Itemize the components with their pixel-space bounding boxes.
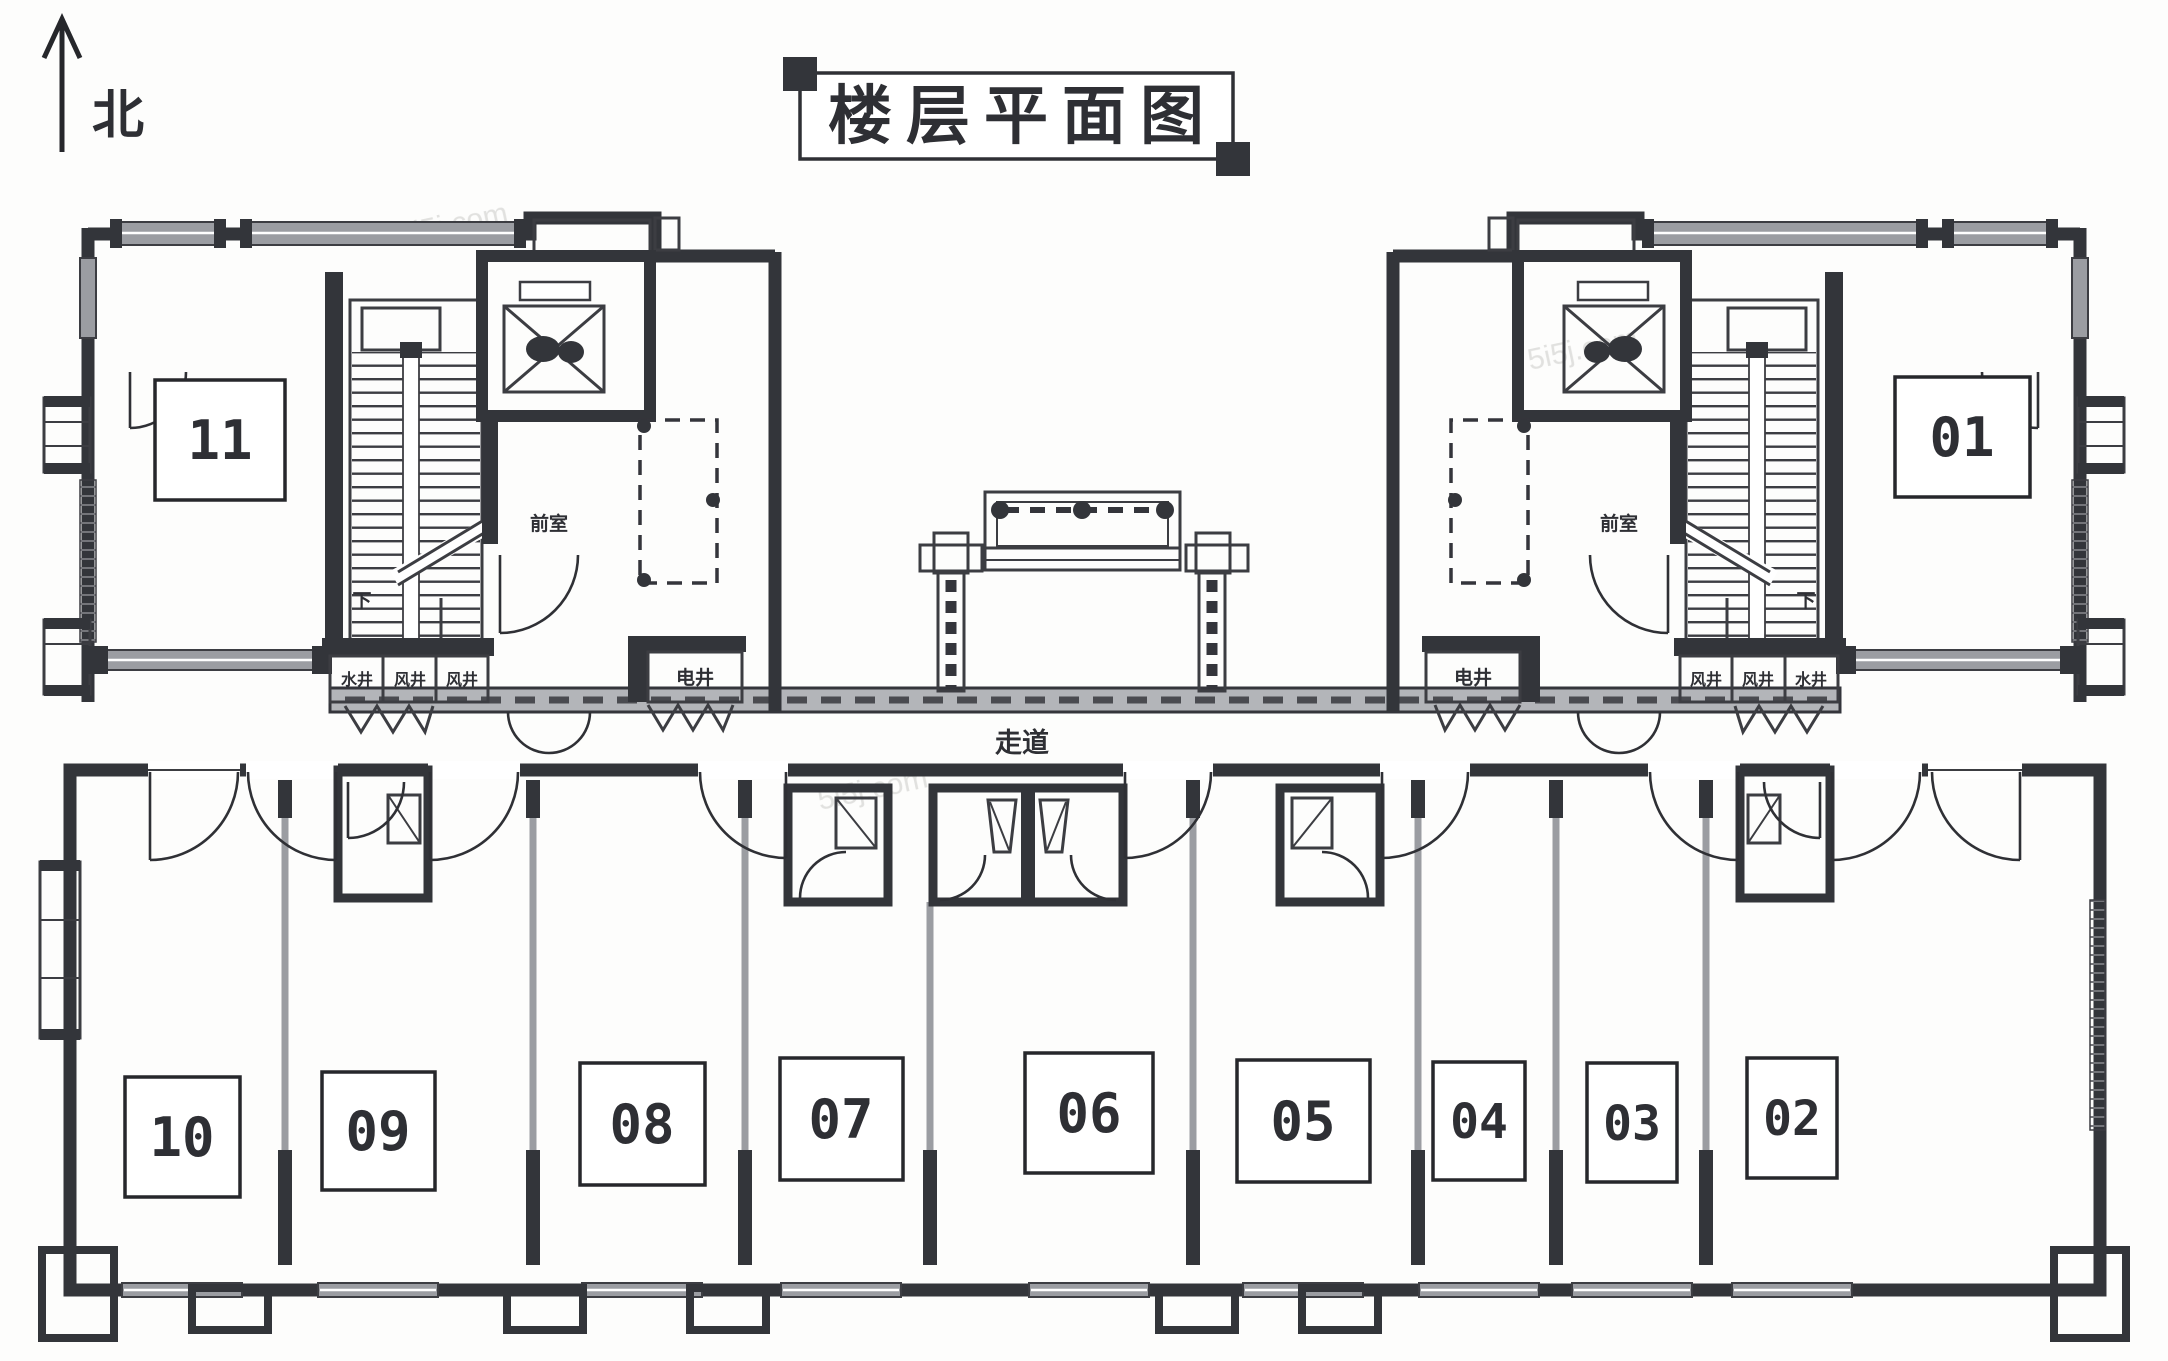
- room-label-05: 05: [1237, 1060, 1370, 1182]
- room-label-01: 01: [1895, 377, 2030, 497]
- svg-text:05: 05: [1270, 1090, 1335, 1153]
- shaft-label: 风井: [394, 670, 426, 689]
- svg-text:11: 11: [187, 409, 252, 472]
- room-label-03: 03: [1587, 1063, 1677, 1182]
- svg-text:08: 08: [609, 1093, 674, 1156]
- room-label-02: 02: [1747, 1058, 1837, 1178]
- vestibule-label: 前室: [530, 512, 568, 535]
- shaft-label: 水井: [1795, 670, 1827, 689]
- stair-down-label: 下: [1796, 591, 1815, 612]
- corridor: [330, 688, 1840, 712]
- shaft-label: 风井: [1690, 670, 1722, 689]
- svg-text:09: 09: [345, 1100, 410, 1163]
- svg-text:10: 10: [149, 1106, 214, 1169]
- plan-title: 楼层平面图: [828, 80, 1218, 152]
- room-label-07: 07: [780, 1058, 903, 1180]
- svg-text:03: 03: [1603, 1096, 1661, 1152]
- entry-pod: [338, 770, 428, 898]
- svg-text:06: 06: [1056, 1082, 1121, 1145]
- electrical-shaft-label: 电井: [1454, 666, 1492, 689]
- room-label-11: 11: [155, 380, 285, 500]
- vestibule-label: 前室: [1600, 512, 1638, 535]
- entry-pod: [1280, 788, 1380, 902]
- corridor-label: 走道: [995, 727, 1049, 758]
- floor-plan-page: 5i5j.com 5i5j.com 5i5j.com 北 楼层平面图: [0, 0, 2168, 1361]
- floor-plan-drawing: 5i5j.com 5i5j.com 5i5j.com 北 楼层平面图: [0, 0, 2168, 1361]
- stair-down-label: 下: [352, 591, 371, 612]
- entry-pod: [1740, 770, 1830, 898]
- shaft-label: 风井: [446, 670, 478, 689]
- north-label: 北: [92, 87, 144, 145]
- connecting-bridge: [920, 492, 1248, 691]
- electrical-shaft-label: 电井: [676, 666, 714, 689]
- shaft-label: 风井: [1742, 670, 1774, 689]
- room-label-09: 09: [322, 1072, 435, 1190]
- entry-pod: [933, 788, 1123, 902]
- svg-text:02: 02: [1763, 1091, 1821, 1147]
- svg-text:01: 01: [1929, 406, 1994, 469]
- room-label-10: 10: [125, 1077, 240, 1197]
- room-label-08: 08: [580, 1063, 705, 1185]
- plan-title-block: 楼层平面图: [783, 57, 1250, 176]
- duct-shaft: [637, 419, 720, 587]
- elevator: [482, 256, 650, 416]
- svg-text:04: 04: [1450, 1094, 1508, 1150]
- room-label-04: 04: [1433, 1062, 1525, 1180]
- svg-text:07: 07: [808, 1088, 873, 1151]
- room-label-06: 06: [1025, 1053, 1153, 1173]
- shaft-label: 水井: [341, 670, 373, 689]
- bottom-slab: [40, 761, 2126, 1338]
- north-arrow: 北: [44, 19, 144, 152]
